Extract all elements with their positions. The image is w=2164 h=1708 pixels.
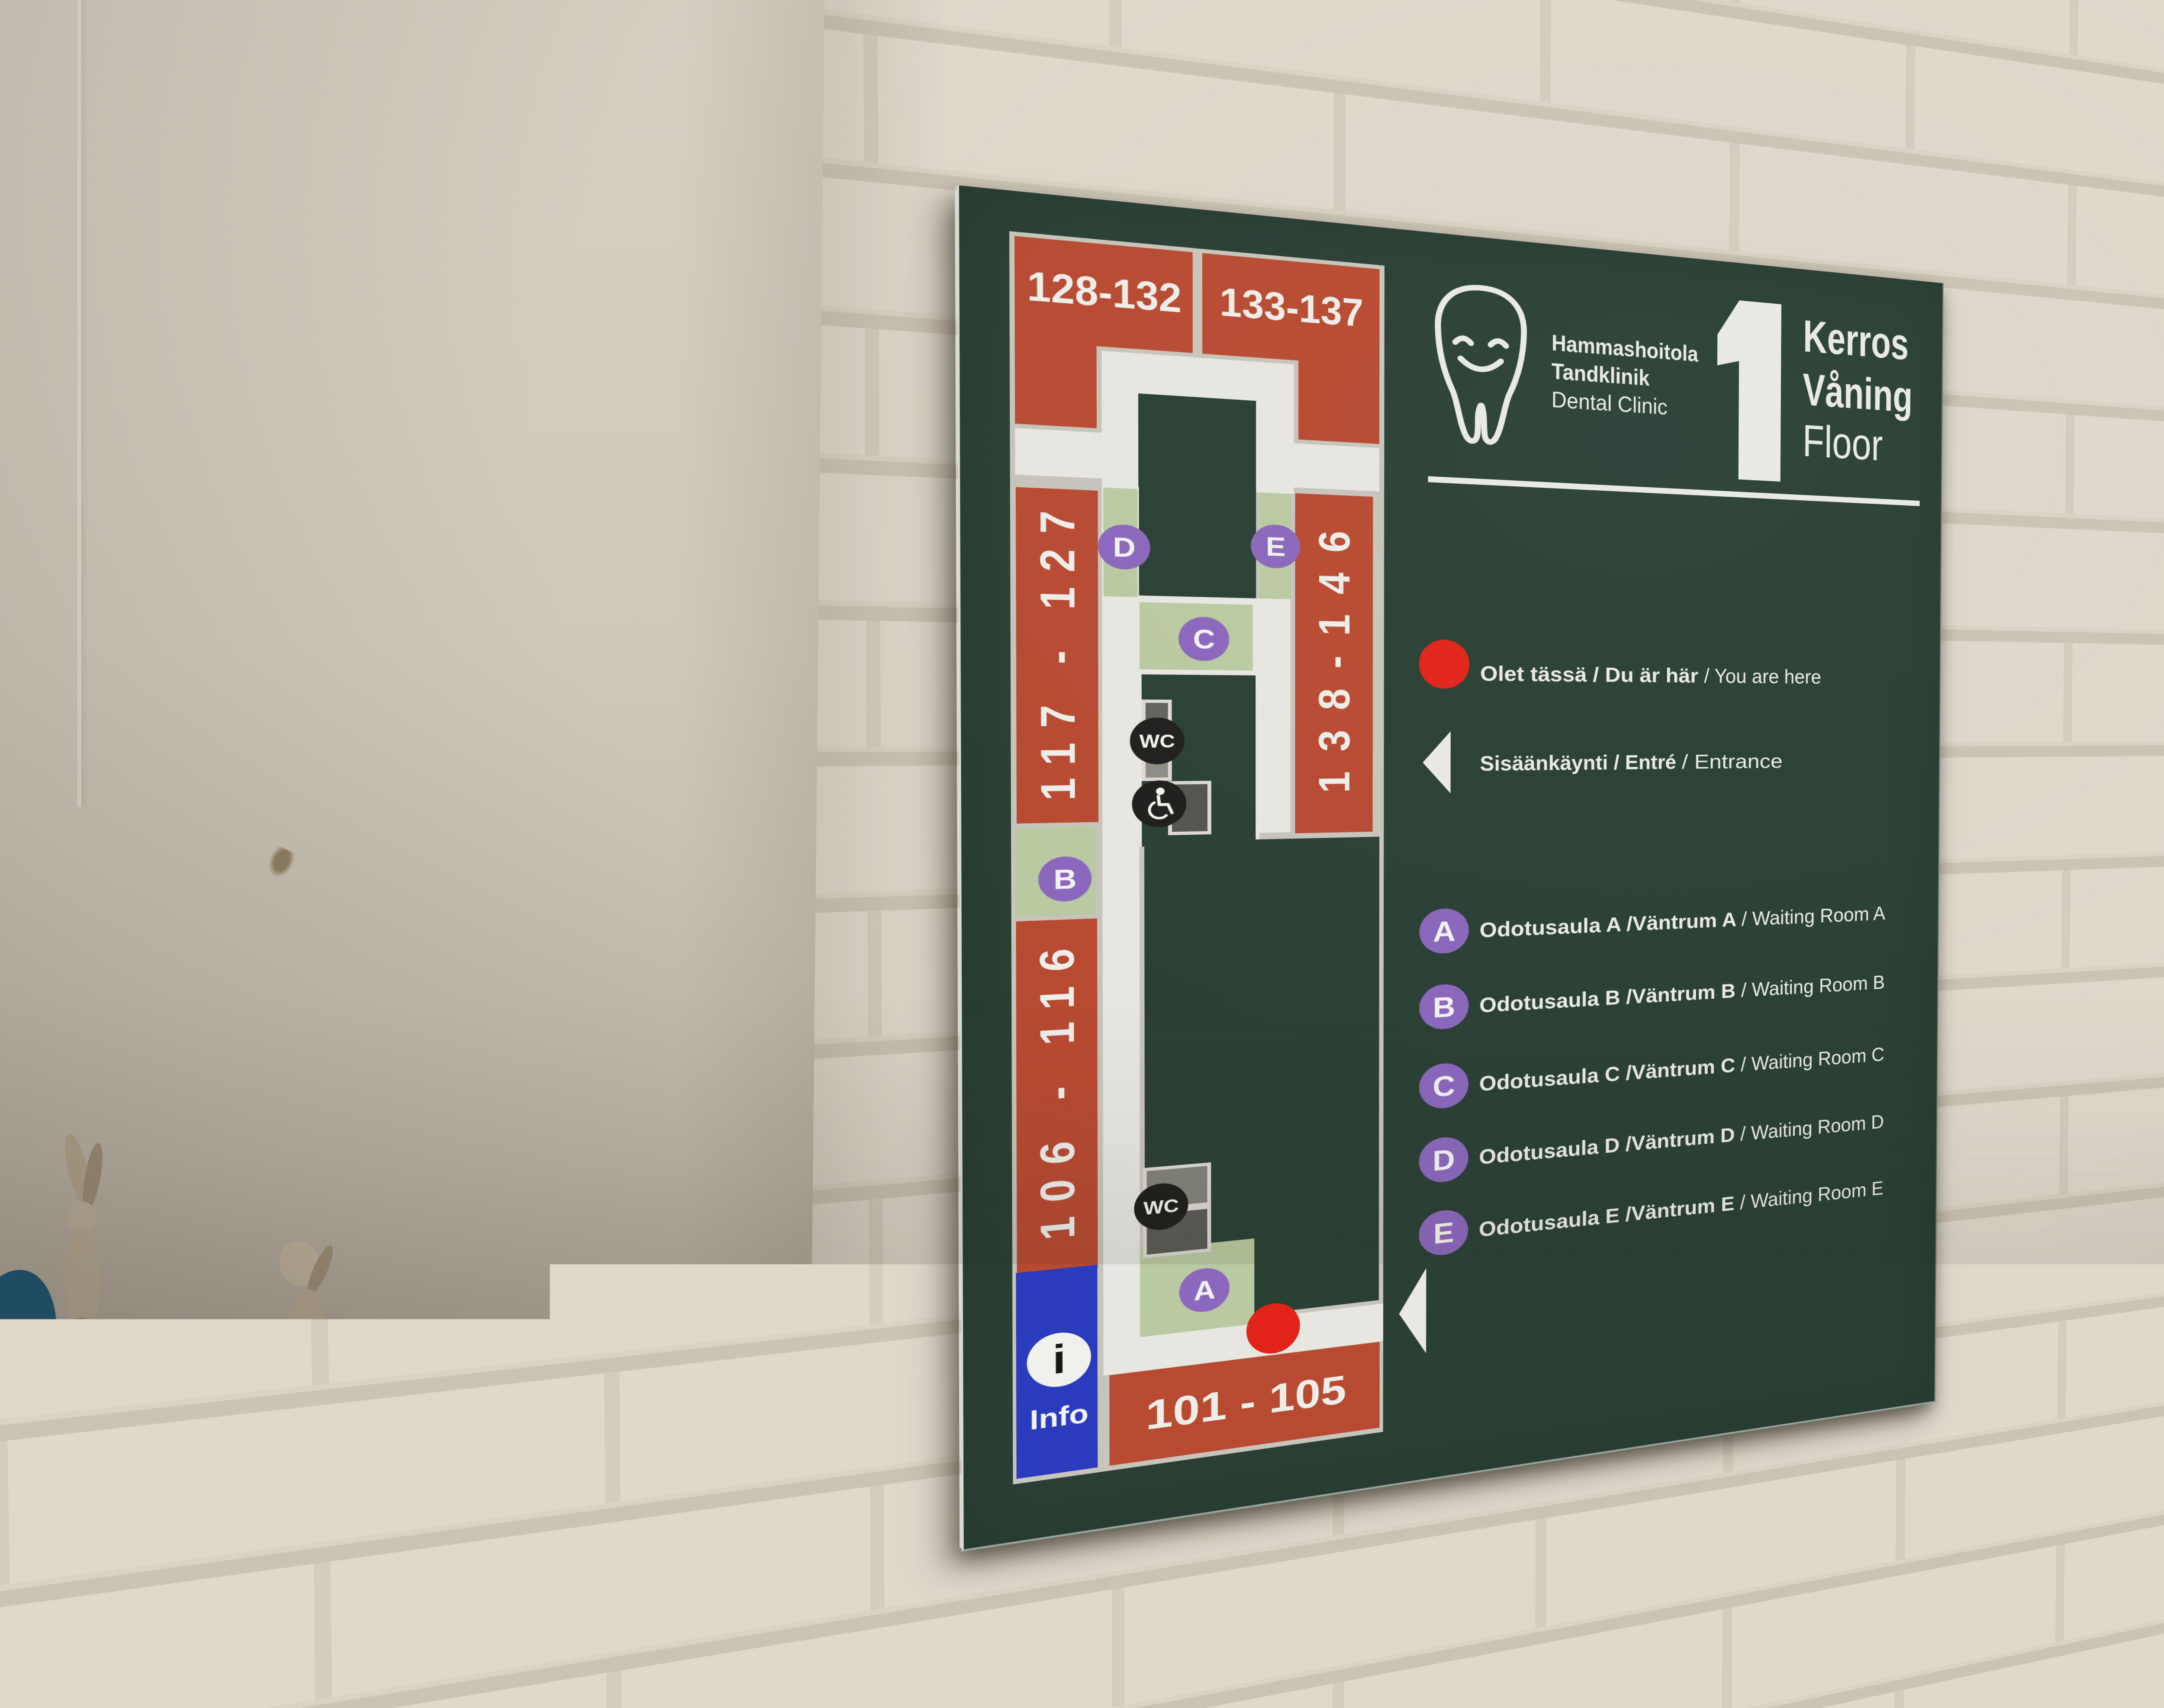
svg-text:Dental Clinic: Dental Clinic: [1552, 387, 1668, 420]
svg-text:i: i: [1053, 1336, 1066, 1383]
svg-text:D: D: [1433, 1144, 1455, 1177]
svg-text:WC: WC: [1143, 1195, 1179, 1219]
svg-text:Odotusaula A /Väntrum A / Wait: Odotusaula A /Väntrum A / Waiting Room A: [1479, 903, 1885, 942]
svg-text:Odotusaula E /Väntrum E / Wait: Odotusaula E /Väntrum E / Waiting Room E: [1479, 1177, 1884, 1242]
svg-text:Olet tässä / Du är här / You a: Olet tässä / Du är här / You are here: [1480, 662, 1821, 688]
svg-text:C: C: [1193, 624, 1215, 654]
svg-text:Våning: Våning: [1803, 364, 1913, 422]
svg-text:117 - 127: 117 - 127: [1030, 510, 1085, 801]
svg-text:C: C: [1433, 1070, 1455, 1103]
svg-text:Kerros: Kerros: [1803, 311, 1909, 369]
svg-text:Odotusaula D /Väntrum D / Wait: Odotusaula D /Väntrum D / Waiting Room D: [1479, 1111, 1884, 1169]
svg-text:B: B: [1433, 991, 1455, 1024]
svg-text:Odotusaula C /Väntrum C / Wait: Odotusaula C /Väntrum C / Waiting Room C: [1479, 1044, 1885, 1096]
svg-text:Tandklinik: Tandklinik: [1552, 358, 1650, 390]
svg-text:D: D: [1113, 532, 1136, 563]
svg-text:Floor: Floor: [1802, 415, 1883, 470]
svg-text:A: A: [1194, 1275, 1216, 1306]
svg-text:B: B: [1053, 864, 1077, 895]
svg-text:Sisäänkäynti / Entré / Entranc: Sisäänkäynti / Entré / Entrance: [1480, 750, 1783, 775]
svg-text:Odotusaula B /Väntrum B / Wait: Odotusaula B /Väntrum B / Waiting Room B: [1479, 971, 1885, 1017]
svg-text:E: E: [1266, 532, 1286, 562]
svg-text:E: E: [1433, 1217, 1454, 1250]
svg-text:WC: WC: [1140, 731, 1175, 752]
svg-text:106 - 116: 106 - 116: [1029, 948, 1085, 1243]
svg-text:A: A: [1433, 916, 1456, 948]
